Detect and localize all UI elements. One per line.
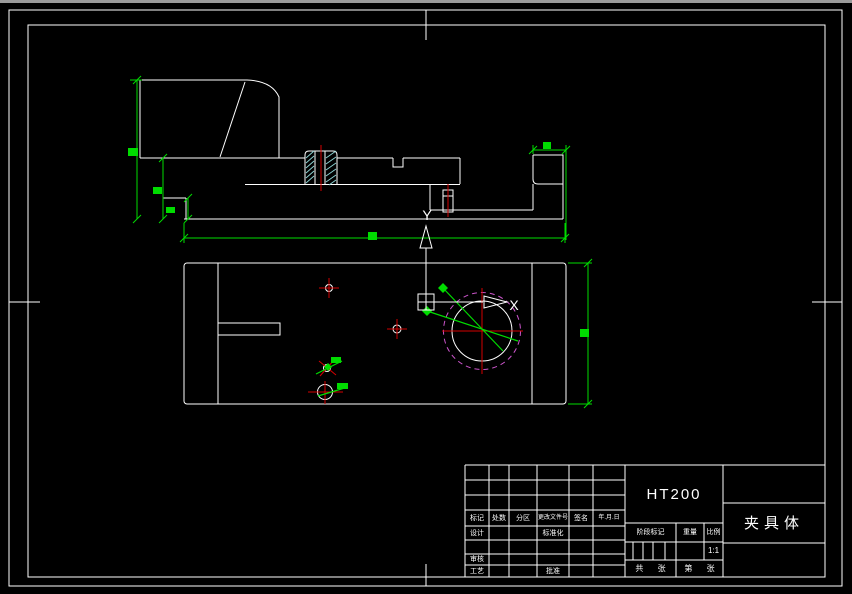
right-block — [533, 155, 563, 219]
col-date: 年.月.日 — [593, 510, 625, 526]
scale-value: 1:1 — [704, 542, 723, 560]
dimensions — [130, 76, 592, 408]
sheet-number: 第 张 — [676, 560, 723, 577]
material-value: HT200 — [625, 465, 723, 523]
col-count: 处数 — [489, 510, 509, 526]
surface-groove — [393, 158, 403, 167]
col-signature: 签名 — [569, 510, 593, 526]
wedge-slant-edge — [220, 82, 245, 157]
front-view — [138, 80, 563, 219]
weight-label: 重量 — [676, 523, 704, 542]
left-slot — [218, 323, 280, 335]
ucs-icon: Y X — [418, 207, 519, 313]
cad-viewport[interactable]: Y X HT200 夹具体 标记 处数 分区 更改文件号 签名 年.月.日 设计… — [0, 0, 852, 594]
ucs-y-arrow — [420, 226, 432, 248]
col-zone: 分区 — [509, 510, 537, 526]
sheet-total: 共 张 — [625, 560, 676, 577]
ucs-y-label: Y — [422, 207, 432, 223]
col-change-doc: 更改文件号 — [537, 510, 569, 526]
audit-label: 审核 — [465, 554, 489, 565]
window-top-edge — [0, 0, 852, 3]
scale-label: 比例 — [704, 523, 723, 542]
craft-label: 工艺 — [465, 565, 489, 577]
plan-view — [184, 263, 566, 404]
col-mark: 标记 — [465, 510, 489, 526]
design-label: 设计 — [465, 526, 489, 540]
ucs-x-label: X — [509, 297, 519, 313]
stage-mark-label: 阶段标记 — [625, 523, 676, 542]
leader-lines — [316, 288, 518, 396]
part-name: 夹具体 — [723, 503, 825, 543]
approve-label: 批准 — [537, 565, 569, 577]
standardize-label: 标准化 — [537, 526, 569, 540]
dimension-text — [128, 142, 589, 389]
grip-markers — [324, 283, 448, 371]
